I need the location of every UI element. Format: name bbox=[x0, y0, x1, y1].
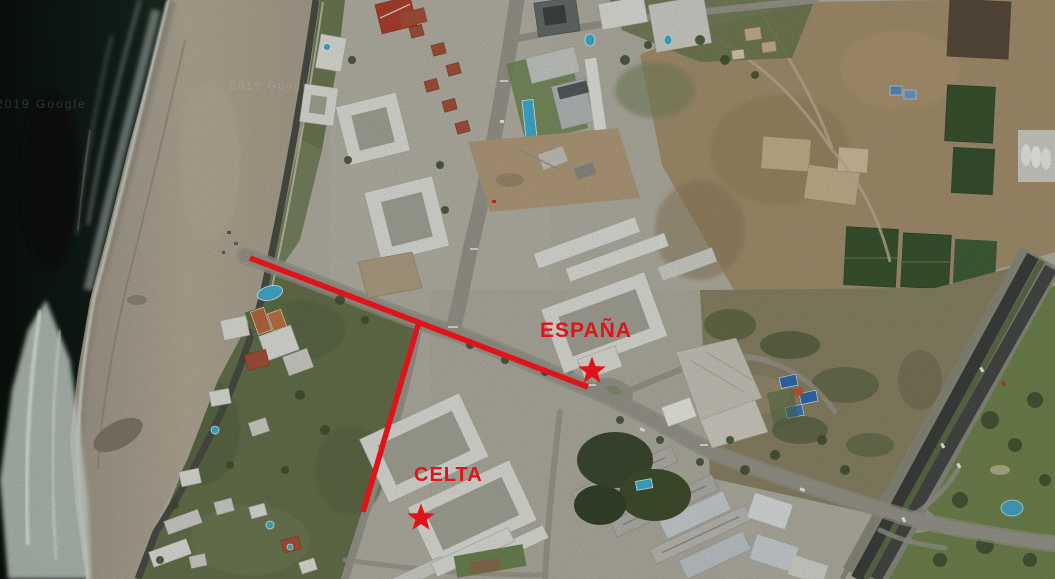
espana-label: ESPAÑA bbox=[540, 319, 632, 342]
satellite-map[interactable]: 2019 Google 2019 Google ESPAÑA CELTA bbox=[0, 0, 1055, 579]
texture-overlay bbox=[0, 0, 1055, 579]
watermark-text-ocean: 2019 Google bbox=[0, 97, 87, 111]
celta-label: CELTA bbox=[414, 464, 483, 486]
satellite-scene: 2019 Google 2019 Google ESPAÑA CELTA bbox=[0, 0, 1055, 579]
watermark-text-beach: 2019 Google bbox=[230, 80, 315, 92]
